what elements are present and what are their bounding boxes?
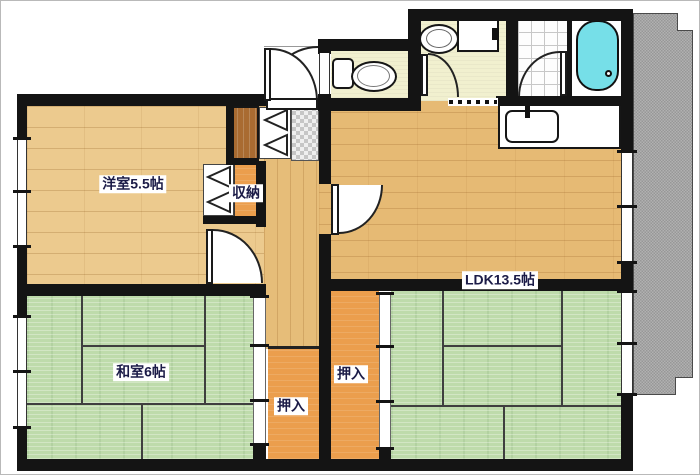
wash-basin-inner <box>426 29 452 48</box>
western-room-door-leaf <box>206 229 213 284</box>
washroom-door-leaf <box>421 54 428 96</box>
entrance-tile <box>291 106 319 161</box>
wall-segment <box>203 216 265 224</box>
japanese-room2-floor <box>391 291 621 459</box>
wall-segment <box>621 9 633 151</box>
ldk-door-leaf <box>331 184 339 235</box>
storage-label: 収納 <box>229 184 263 202</box>
door-tick <box>376 345 394 348</box>
window-tick <box>617 261 637 264</box>
wall-segment <box>408 9 421 98</box>
wall-segment <box>318 98 421 111</box>
threshold-dashes <box>449 100 497 104</box>
wall-segment <box>621 396 633 471</box>
window-tick <box>13 315 31 318</box>
window-tick <box>13 245 31 248</box>
balcony-notch <box>675 377 693 395</box>
tatami-line <box>561 291 563 405</box>
bathtub <box>576 20 619 91</box>
faucet-icon <box>525 104 530 118</box>
window-tick <box>617 290 637 293</box>
window-tick <box>617 393 637 396</box>
door-tick <box>250 344 269 347</box>
western-room-label: 洋室5.5帖 <box>99 175 166 193</box>
wall-segment <box>379 449 391 459</box>
wall-segment <box>567 15 572 98</box>
balcony-notch <box>677 13 693 31</box>
wall-segment <box>17 94 266 106</box>
window-tick <box>617 205 637 208</box>
tatami-line <box>503 405 505 459</box>
wall-segment <box>17 94 27 138</box>
bathroom-door-leaf <box>560 51 567 96</box>
window-tick <box>617 150 637 153</box>
japanese-room-label: 和室6帖 <box>113 363 169 381</box>
entrance-door-leaf <box>266 98 318 110</box>
wall-segment <box>506 9 518 98</box>
window-tick <box>13 190 31 193</box>
door-tick <box>376 447 394 450</box>
tatami-line <box>391 405 621 407</box>
window-tick <box>13 426 31 429</box>
window-tick <box>617 342 637 345</box>
door-tick <box>250 295 269 298</box>
toilet-seat-line <box>357 65 390 87</box>
closet-divider-line <box>268 346 319 349</box>
wall-segment <box>17 284 253 296</box>
tatami-line <box>204 296 206 403</box>
balcony <box>633 13 693 395</box>
tatami-line <box>81 345 206 347</box>
ldk-label: LDK13.5帖 <box>462 271 538 289</box>
window-tick <box>13 370 31 373</box>
wall-segment <box>621 264 633 291</box>
toilet-window <box>319 53 330 94</box>
window <box>17 138 27 248</box>
door-tick <box>250 443 269 446</box>
bathtub-drain-icon <box>605 70 612 77</box>
wall-segment <box>496 96 633 106</box>
wall-segment <box>17 248 27 316</box>
wall-segment <box>319 104 331 184</box>
tatami-line <box>81 296 83 403</box>
wall-segment <box>226 158 259 165</box>
tatami-line <box>27 403 253 405</box>
door-tick <box>376 400 394 403</box>
fusuma-sliding-door <box>253 296 266 445</box>
tatami-line <box>442 291 444 405</box>
wall-segment <box>411 9 633 21</box>
closet-left-label: 押入 <box>274 397 308 415</box>
toilet-door-leaf <box>264 48 271 101</box>
washing-machine-tap-icon <box>492 28 499 40</box>
wall-segment <box>253 445 266 459</box>
kitchen-sink <box>505 110 559 143</box>
wall-segment <box>226 106 234 161</box>
wall-segment <box>318 39 421 51</box>
genkan-folding-door <box>259 107 291 159</box>
window-tick <box>13 137 31 140</box>
folding-door-icon <box>260 108 290 158</box>
door-tick <box>250 399 269 402</box>
door-tick <box>376 292 394 295</box>
wall-segment <box>319 234 331 461</box>
floorplan: 洋室5.5帖 収納 LDK13.5帖 和室6帖 押入 押入 <box>0 0 700 475</box>
closet-right-label: 押入 <box>334 365 368 383</box>
fusuma-sliding-door <box>379 293 391 449</box>
tatami-line <box>141 403 143 459</box>
tatami-line <box>442 345 563 347</box>
